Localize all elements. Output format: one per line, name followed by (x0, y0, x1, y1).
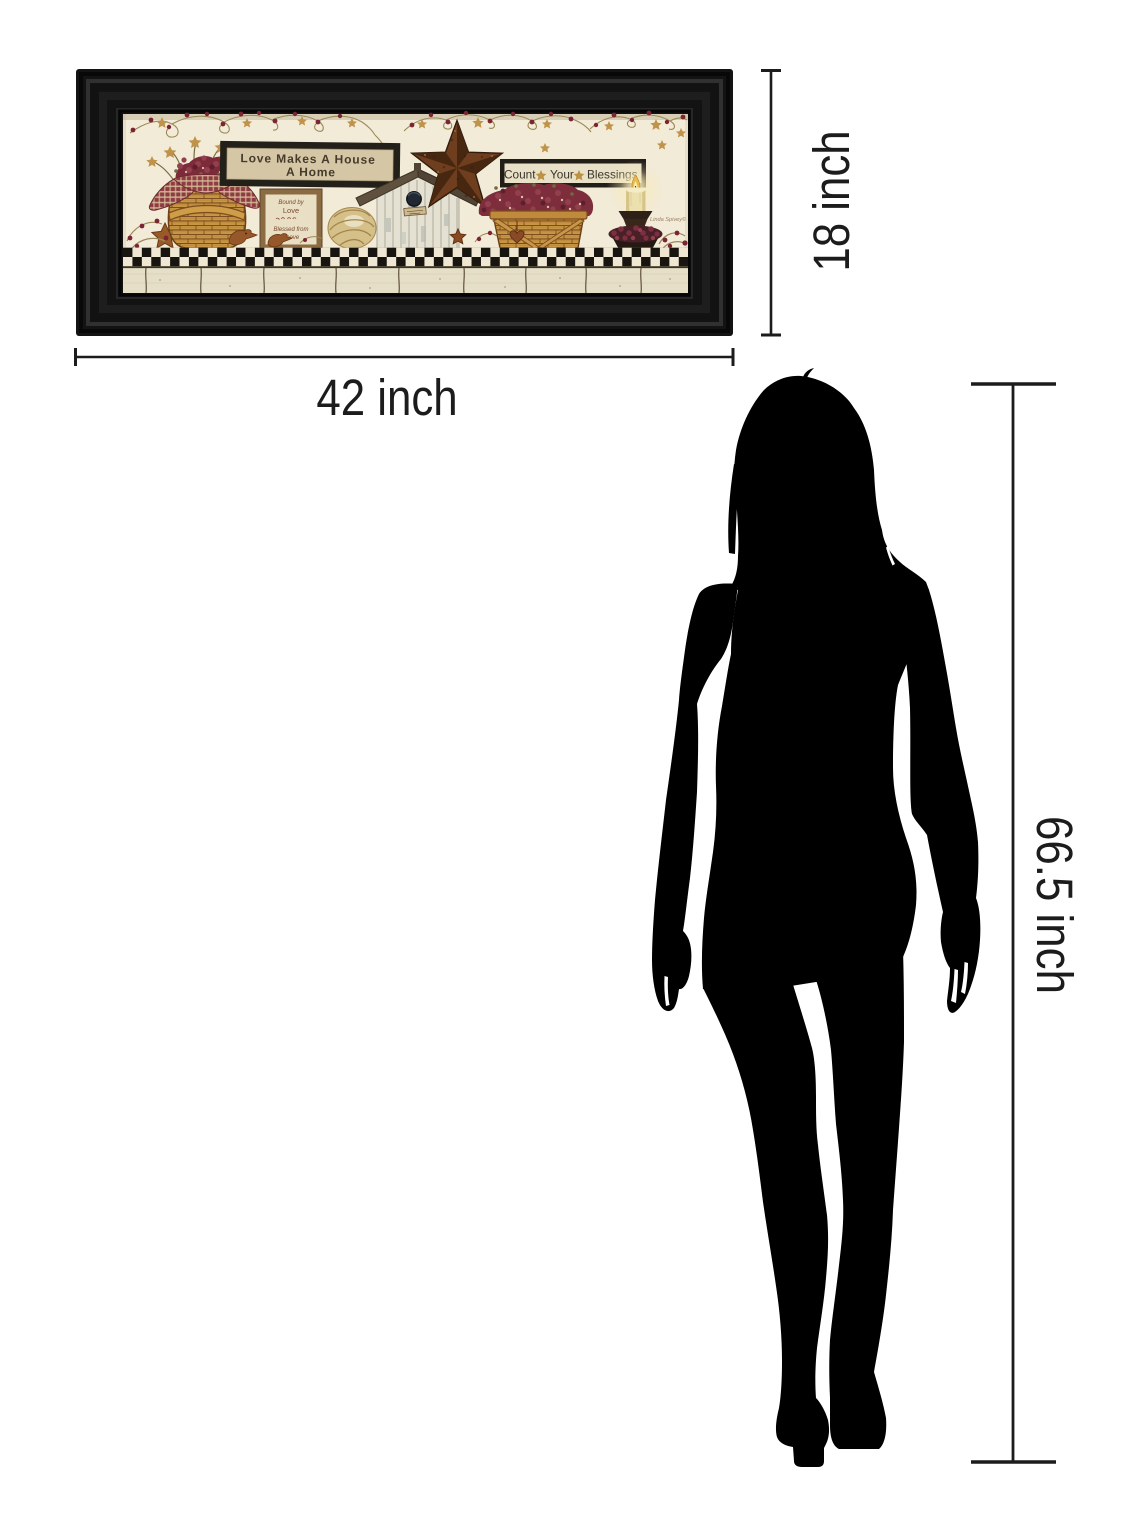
svg-text:Blessed from: Blessed from (273, 227, 308, 233)
svg-text:Love: Love (283, 206, 299, 215)
svg-text:A Home: A Home (286, 165, 336, 180)
svg-text:18 inch: 18 inch (804, 130, 861, 271)
svg-text:Count: Count (504, 168, 536, 182)
svg-text:Linda Spivey©: Linda Spivey© (650, 216, 687, 223)
svg-text:Your: Your (550, 168, 574, 182)
svg-text:42 inch: 42 inch (316, 370, 457, 427)
svg-text:66.5 inch: 66.5 inch (1025, 816, 1082, 994)
